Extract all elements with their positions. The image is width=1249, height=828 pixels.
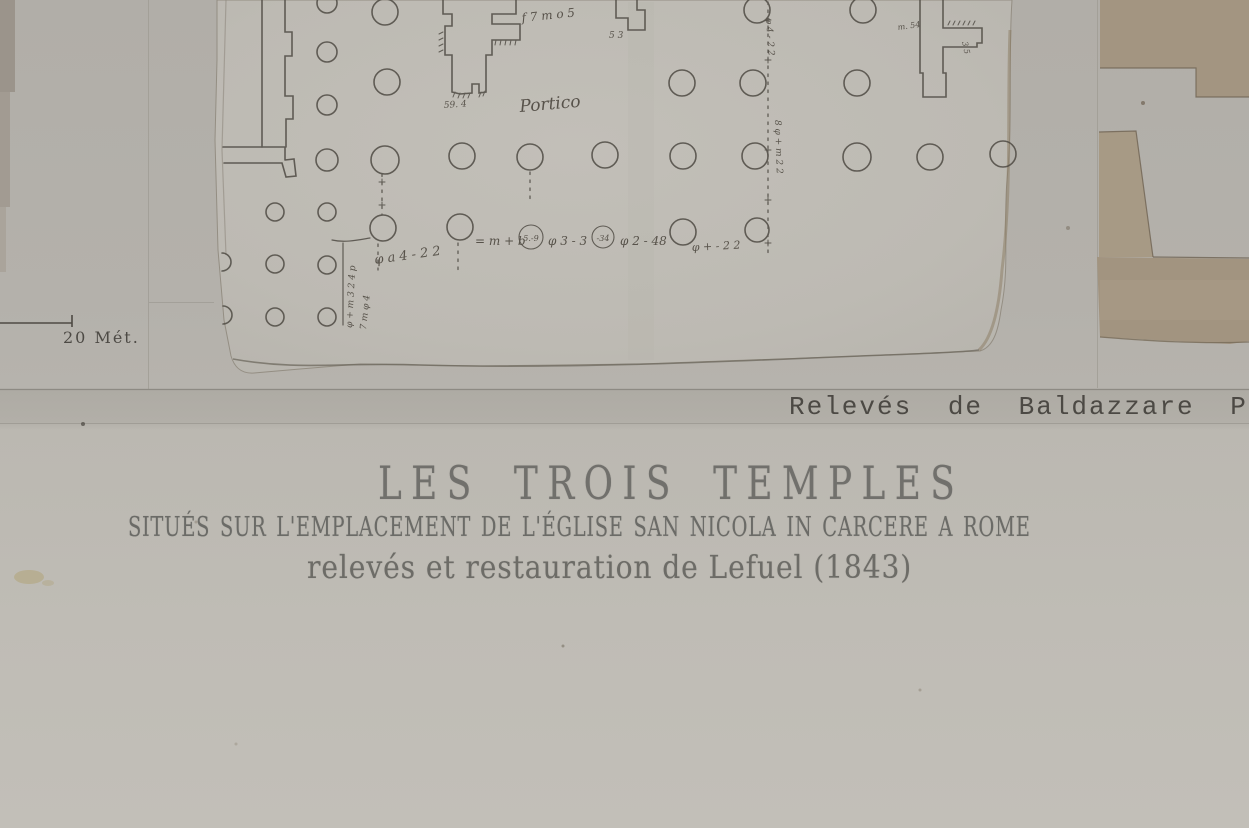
- plate-byline: relevés et restauration de Lefuel (1843): [307, 548, 912, 586]
- annotation-pier1: 59. 4: [444, 99, 468, 111]
- credit-line: Relevés de Baldazzare Per: [789, 392, 1249, 422]
- plate-subtitle: SITUÉS SUR L'EMPLACEMENT DE L'ÉGLISE SAN…: [128, 512, 1031, 543]
- scale-bar-label: 20 Mét.: [63, 328, 140, 347]
- fragment-paper: [215, 0, 1012, 373]
- right-sepia-plan: [1097, 0, 1249, 344]
- annotation-row-2: φ 3 - 3: [548, 234, 588, 248]
- scan-edge-strip: [0, 0, 15, 272]
- annotation-row-1: = m + b: [475, 234, 526, 248]
- annotation-axis-lower: 8 φ + m 2 2: [772, 120, 784, 174]
- sketch-fragment: [215, 0, 1012, 373]
- annotation-row-4: φ + - 2 2: [691, 238, 740, 254]
- annotation-row-circle-1: 5.-9: [523, 234, 538, 243]
- scale-bar: [0, 315, 72, 327]
- plate-title: LES TROIS TEMPLES: [378, 456, 964, 510]
- annotation-pier4: 5 3: [609, 31, 624, 41]
- annotation-row-3: φ 2 - 48: [620, 234, 667, 248]
- annotation-row-circle-2: -34: [597, 234, 610, 243]
- scanned-plate: f 7 m o 5 59. 4 Portico m. 54 3 5 5 3 φ …: [0, 0, 1249, 828]
